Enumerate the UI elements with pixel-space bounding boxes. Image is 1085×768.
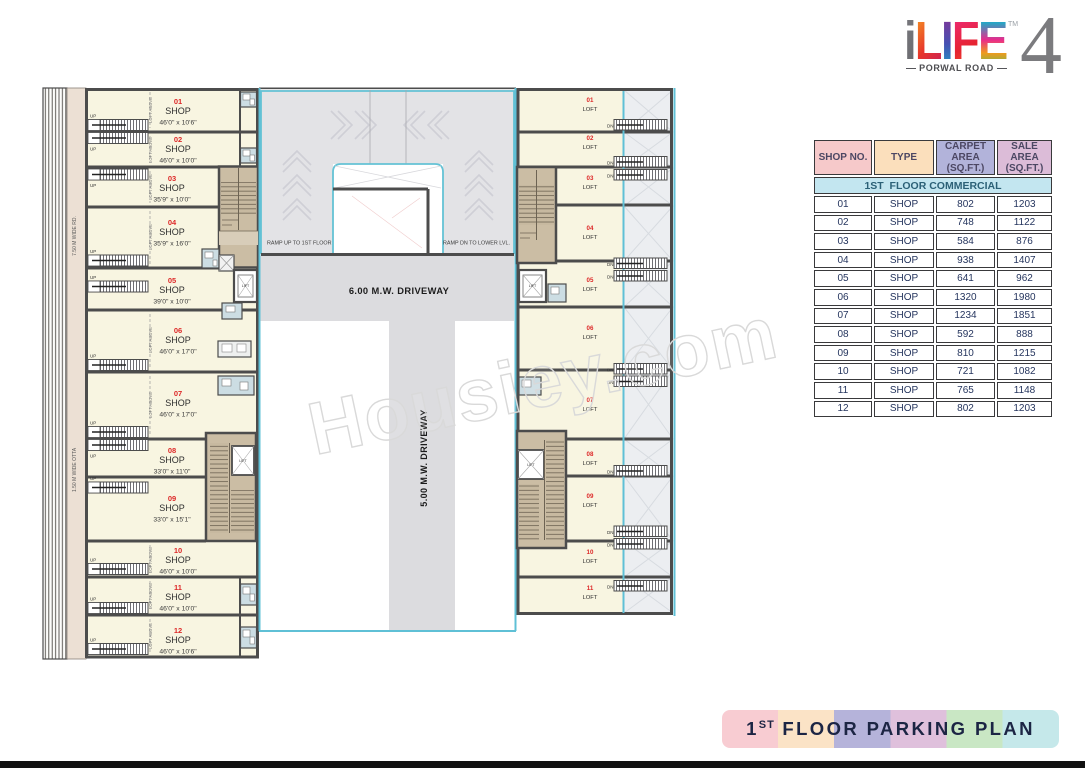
svg-text:LIFT: LIFT [239,459,247,463]
svg-text:UP: UP [90,421,96,426]
svg-text:SHOP: SHOP [165,635,191,645]
svg-text:DN: DN [607,470,614,475]
svg-text:LOFT ABOVE: LOFT ABOVE [148,224,153,250]
svg-text:UP: UP [90,638,96,643]
svg-text:SHOP: SHOP [159,285,185,295]
svg-text:RAMP DN TO LOWER LVL.: RAMP DN TO LOWER LVL. [443,241,510,247]
svg-text:DN: DN [607,275,614,280]
svg-text:SHOP: SHOP [165,335,191,345]
svg-text:09: 09 [587,493,594,500]
svg-text:LOFT ABOVE: LOFT ABOVE [148,583,153,609]
svg-text:LOFT: LOFT [583,235,598,241]
svg-text:09: 09 [168,494,176,503]
svg-text:7.50 M WIDE RD.: 7.50 M WIDE RD. [72,216,78,256]
svg-text:SHOP: SHOP [159,227,185,237]
svg-text:01: 01 [174,97,182,106]
svg-text:DN: DN [607,543,614,548]
svg-text:UP: UP [90,275,96,280]
svg-text:02: 02 [587,135,594,142]
svg-text:1.50 M WIDE OTTA: 1.50 M WIDE OTTA [72,447,78,492]
svg-text:SHOP: SHOP [165,106,191,116]
svg-text:46'0" x 10'0": 46'0" x 10'0" [159,606,197,613]
svg-text:6.00 M.W. DRIVEWAY: 6.00 M.W. DRIVEWAY [349,286,450,296]
svg-text:46'0" x 17'0": 46'0" x 17'0" [159,412,197,419]
svg-text:LOFT ABOVE: LOFT ABOVE [148,623,153,649]
svg-text:04: 04 [587,225,594,232]
svg-text:33'0" x 11'0": 33'0" x 11'0" [154,469,191,476]
svg-text:LOFT: LOFT [583,287,598,293]
svg-text:LOFT ABOVE: LOFT ABOVE [148,327,153,353]
svg-text:SHOP: SHOP [159,503,185,513]
svg-text:LOFT: LOFT [583,107,598,113]
svg-text:35'9" x 10'0": 35'9" x 10'0" [153,197,191,204]
svg-text:46'0" x 10'0": 46'0" x 10'0" [159,158,197,165]
svg-text:DN: DN [607,530,614,535]
svg-text:DN: DN [607,585,614,590]
svg-text:SHOP: SHOP [165,592,191,602]
svg-text:01: 01 [587,97,594,104]
svg-text:UP: UP [90,597,96,602]
svg-text:UP: UP [90,183,96,188]
svg-text:08: 08 [168,446,176,455]
svg-text:10: 10 [587,549,594,556]
svg-text:SHOP: SHOP [159,455,185,465]
svg-text:LOFT ABOVE: LOFT ABOVE [148,392,153,418]
svg-text:DN: DN [607,124,614,129]
svg-text:DN: DN [607,262,614,267]
svg-text:UP: UP [90,558,96,563]
svg-text:LIFT: LIFT [527,463,535,467]
svg-text:SHOP: SHOP [159,183,185,193]
svg-text:03: 03 [168,174,176,183]
svg-text:07: 07 [174,389,182,398]
svg-text:LOFT: LOFT [583,595,598,601]
svg-text:35'9" x 16'0": 35'9" x 16'0" [153,241,191,248]
svg-text:LOFT: LOFT [583,145,598,151]
svg-text:08: 08 [587,451,594,458]
svg-text:02: 02 [174,135,182,144]
svg-text:LOFT ABOVE: LOFT ABOVE [148,137,153,163]
svg-text:DN: DN [607,174,614,179]
svg-text:SHOP: SHOP [165,144,191,154]
svg-text:05: 05 [168,276,176,285]
svg-text:LOFT: LOFT [583,503,598,509]
svg-text:03: 03 [587,175,594,182]
svg-text:46'0" x 17'0": 46'0" x 17'0" [159,349,197,356]
svg-text:DN: DN [607,161,614,166]
svg-text:04: 04 [168,218,177,227]
svg-text:46'0" x 10'0": 46'0" x 10'0" [159,569,197,576]
svg-text:SHOP: SHOP [165,398,191,408]
svg-text:10: 10 [174,546,182,555]
svg-text:LOFT: LOFT [583,461,598,467]
svg-text:LOFT ABOVE: LOFT ABOVE [148,97,153,123]
svg-text:UP: UP [90,454,96,459]
svg-text:39'0" x 10'0": 39'0" x 10'0" [153,299,191,306]
svg-text:UP: UP [90,114,96,119]
svg-text:11: 11 [174,583,182,592]
svg-text:46'0" x 10'6": 46'0" x 10'6" [159,120,197,127]
svg-text:11: 11 [587,585,594,592]
svg-text:UP: UP [90,249,96,254]
svg-text:LOFT: LOFT [583,559,598,565]
svg-text:46'0" x 10'6": 46'0" x 10'6" [159,649,197,656]
svg-text:12: 12 [174,626,182,635]
svg-text:UP: UP [90,476,96,481]
svg-text:33'0" x 15'1": 33'0" x 15'1" [153,517,191,524]
svg-text:06: 06 [174,326,182,335]
svg-text:LIFT: LIFT [242,284,250,288]
svg-text:UP: UP [90,147,96,152]
svg-text:LOFT ABOVE: LOFT ABOVE [148,174,153,200]
svg-text:LOFT ABOVE: LOFT ABOVE [148,547,153,573]
svg-text:SHOP: SHOP [165,555,191,565]
svg-text:LOFT: LOFT [583,185,598,191]
svg-text:UP: UP [90,354,96,359]
svg-text:05: 05 [587,277,594,284]
svg-text:LIFT: LIFT [529,284,537,288]
svg-text:RAMP UP TO 1ST FLOOR: RAMP UP TO 1ST FLOOR [267,241,332,247]
